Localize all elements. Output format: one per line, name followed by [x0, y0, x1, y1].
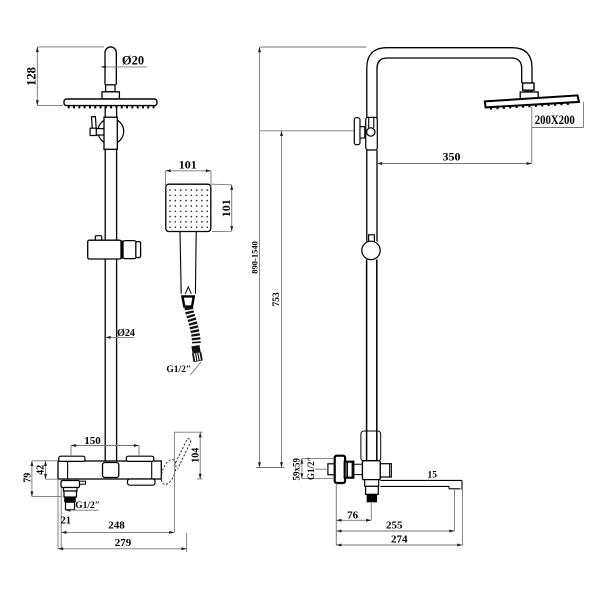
svg-text:128: 128 — [25, 67, 39, 86]
svg-text:248: 248 — [108, 519, 125, 531]
svg-text:101: 101 — [219, 199, 233, 217]
svg-text:G1/2″: G1/2″ — [166, 365, 191, 375]
svg-text:59x59: 59x59 — [291, 457, 301, 480]
svg-text:Ø24: Ø24 — [117, 328, 135, 339]
svg-text:79: 79 — [22, 473, 33, 483]
svg-text:274: 274 — [391, 533, 408, 545]
svg-text:101: 101 — [179, 157, 197, 171]
svg-text:890-1540: 890-1540 — [249, 241, 259, 274]
svg-text:76: 76 — [347, 510, 359, 522]
svg-text:255: 255 — [386, 519, 403, 531]
svg-text:Ø20: Ø20 — [122, 54, 144, 68]
svg-text:200X200: 200X200 — [535, 113, 575, 127]
svg-text:753: 753 — [272, 292, 282, 307]
svg-text:350: 350 — [443, 150, 461, 164]
svg-text:42: 42 — [36, 465, 47, 475]
svg-text:G1/2″: G1/2″ — [306, 456, 316, 480]
svg-text:15: 15 — [428, 470, 438, 480]
svg-text:279: 279 — [115, 537, 132, 549]
svg-text:21: 21 — [61, 515, 72, 526]
svg-text:104: 104 — [190, 448, 201, 463]
svg-text:G1/2″: G1/2″ — [75, 501, 100, 511]
svg-text:150: 150 — [84, 435, 101, 447]
